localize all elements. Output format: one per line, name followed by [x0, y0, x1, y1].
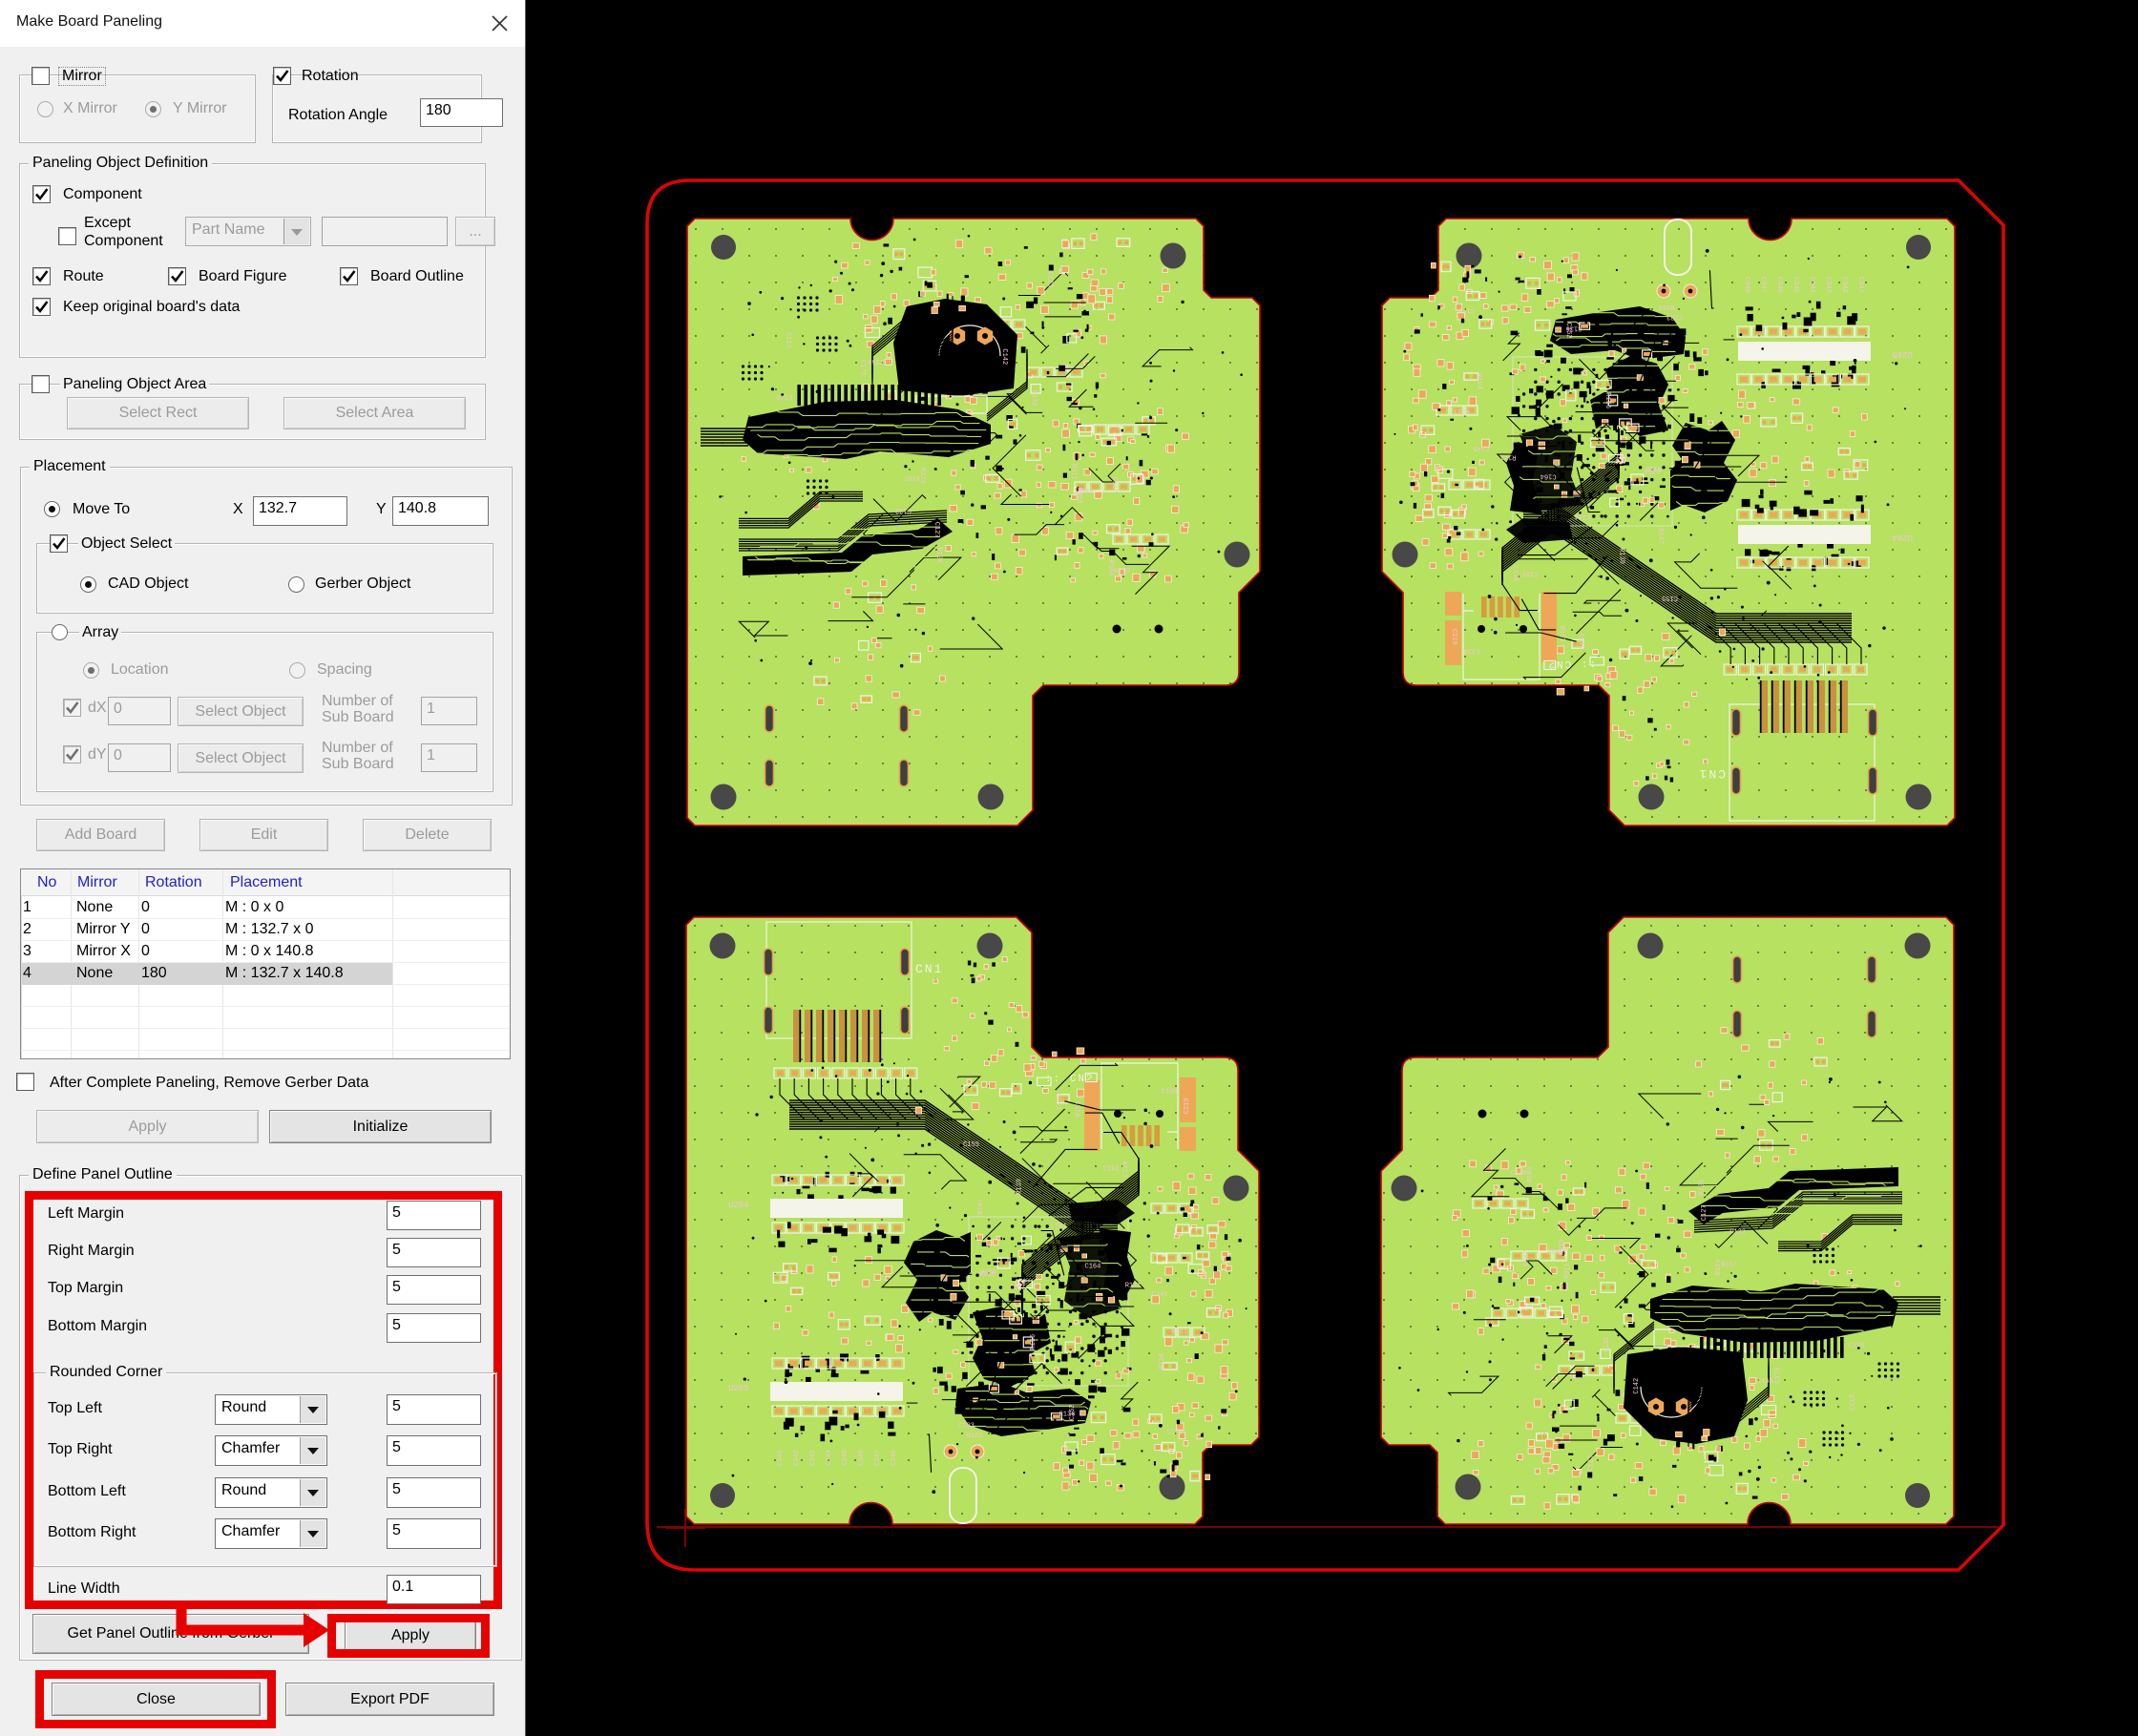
svg-text:R197: R197 — [1721, 1262, 1737, 1269]
svg-text:C113: C113 — [1850, 1394, 1857, 1411]
svg-text:R171: R171 — [1125, 1283, 1142, 1290]
svg-text:C155: C155 — [963, 1141, 979, 1149]
svg-text:C348: C348 — [891, 1450, 898, 1466]
svg-text:C136: C136 — [1059, 1412, 1076, 1419]
svg-text:C129: C129 — [1849, 1342, 1865, 1349]
svg-text:R118: R118 — [979, 1271, 996, 1279]
svg-text:CN1: CN1 — [915, 962, 943, 976]
svg-text:C119: C119 — [1511, 1170, 1527, 1178]
svg-text:C142: C142 — [1633, 1378, 1641, 1394]
svg-text:C187: C187 — [1523, 1250, 1531, 1266]
svg-text:C158: C158 — [1757, 1378, 1773, 1386]
svg-text:R211: R211 — [1171, 1328, 1187, 1336]
svg-text:C343: C343 — [809, 1450, 817, 1466]
svg-text:C346: C346 — [858, 1450, 866, 1466]
svg-text:C145: C145 — [1152, 1291, 1168, 1299]
svg-text:C132: C132 — [1603, 1337, 1611, 1353]
svg-text:C191: C191 — [1103, 1165, 1120, 1173]
svg-text:R139: R139 — [1017, 1179, 1024, 1195]
svg-text:C219: C219 — [1184, 1098, 1191, 1114]
svg-text:C341: C341 — [777, 1450, 785, 1466]
svg-text:C344: C344 — [826, 1450, 833, 1466]
svg-text:U204: U204 — [728, 1201, 749, 1210]
svg-text:C218: C218 — [1057, 1093, 1064, 1109]
svg-text:C133: C133 — [1729, 1228, 1746, 1236]
svg-text:C127: C127 — [1701, 1204, 1708, 1221]
svg-text:R126: R126 — [1698, 1180, 1706, 1196]
svg-text:C123: C123 — [1588, 1455, 1596, 1472]
svg-text:R184: R184 — [1526, 1166, 1534, 1182]
svg-text:R156: R156 — [1030, 1334, 1038, 1350]
svg-text:C347: C347 — [874, 1450, 882, 1466]
svg-text:C342: C342 — [793, 1450, 801, 1466]
svg-text:C345: C345 — [842, 1450, 849, 1466]
svg-text:R124: R124 — [1159, 1353, 1166, 1370]
svg-text:C164: C164 — [1085, 1264, 1101, 1271]
svg-text:C330: C330 — [1162, 1089, 1178, 1097]
svg-text:R153: R153 — [1076, 1100, 1083, 1117]
svg-text:R163: R163 — [967, 1433, 983, 1440]
svg-text:C176: C176 — [1166, 1429, 1183, 1436]
svg-text:C170: C170 — [1774, 1367, 1782, 1383]
svg-text:R311: R311 — [1564, 1263, 1572, 1279]
svg-text:R165: R165 — [1547, 1249, 1563, 1257]
svg-text:R147: R147 — [977, 1199, 985, 1215]
svg-text:U205: U205 — [728, 1384, 749, 1393]
svg-text:C128: C128 — [1122, 1161, 1130, 1177]
svg-text:C334: C334 — [1051, 1224, 1067, 1231]
svg-text:C183: C183 — [958, 1422, 975, 1430]
